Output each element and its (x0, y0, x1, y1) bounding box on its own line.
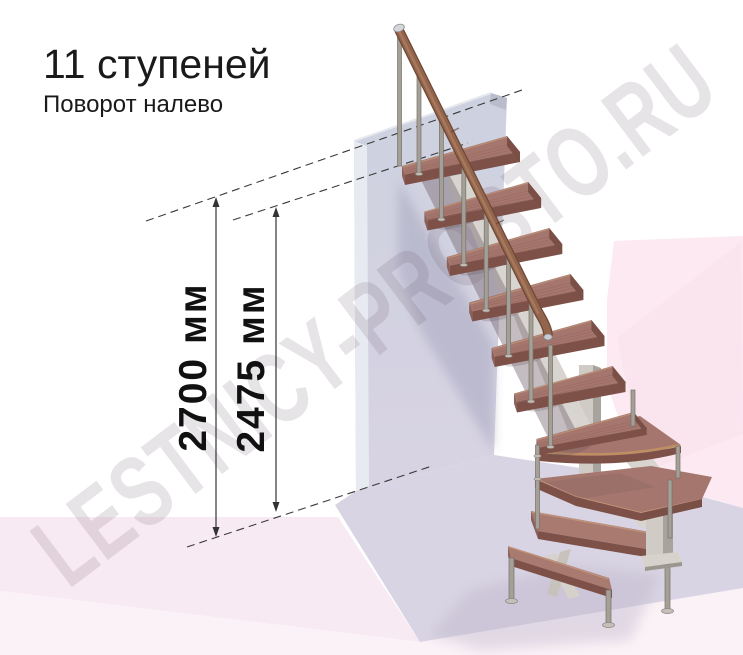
svg-text:2475 мм: 2475 мм (230, 283, 273, 452)
svg-text:2700 мм: 2700 мм (172, 282, 215, 451)
svg-text:11 ступеней: 11 ступеней (43, 41, 271, 87)
svg-text:Поворот налево: Поворот налево (43, 91, 223, 118)
